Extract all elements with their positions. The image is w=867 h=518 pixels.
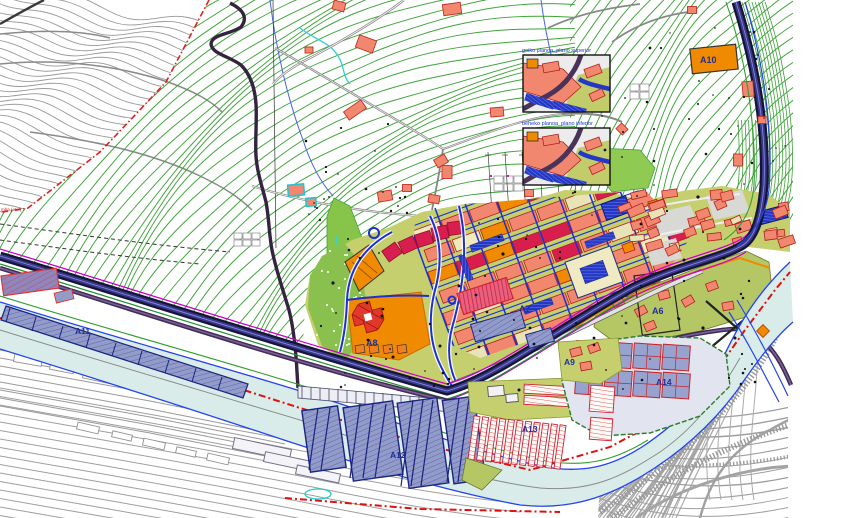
svg-text:A12: A12 <box>390 450 406 460</box>
svg-text:A14: A14 <box>656 377 672 387</box>
svg-text:A10: A10 <box>700 55 717 65</box>
svg-text:goiko planoa_plano superior: goiko planoa_plano superior <box>522 48 591 54</box>
svg-text:A9: A9 <box>564 357 575 367</box>
svg-text:A13: A13 <box>522 424 538 434</box>
svg-text:A11: A11 <box>75 326 90 336</box>
svg-text:beheko planoa_plano inferior: beheko planoa_plano inferior <box>522 121 593 127</box>
svg-text:mba (etel): mba (etel) <box>1 207 22 212</box>
svg-text:A6: A6 <box>652 306 664 316</box>
